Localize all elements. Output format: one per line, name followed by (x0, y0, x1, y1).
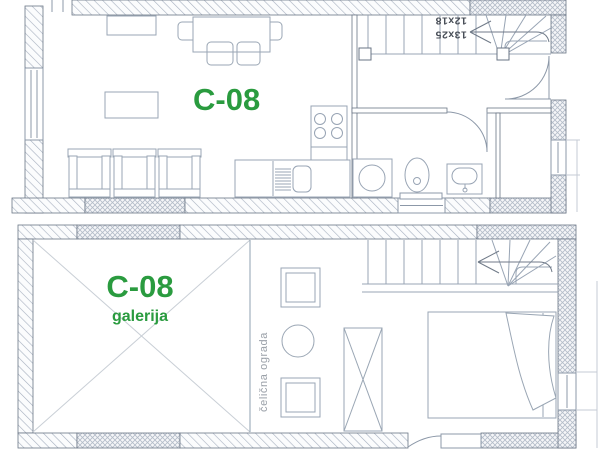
winder-treads (492, 240, 556, 286)
armchair (158, 149, 201, 197)
bed (428, 312, 556, 418)
railing-label: čelična ograda (258, 332, 270, 412)
armchair (113, 149, 156, 197)
bathroom-door (447, 112, 487, 152)
bathroom-sink (447, 164, 482, 194)
stair-direction-arrow (478, 251, 552, 273)
gallery-label-block: C-08 galerija (100, 269, 180, 326)
wall (185, 198, 398, 213)
kitchen-sink (293, 166, 311, 192)
newel-post (497, 48, 509, 60)
wall (180, 433, 408, 448)
entry-door (506, 56, 549, 99)
wall (445, 198, 490, 213)
window-right-wall-gallery (558, 373, 576, 410)
window-bath-south (398, 193, 445, 213)
window-left-wall (25, 68, 43, 140)
wall (180, 225, 477, 239)
wall (558, 239, 576, 373)
wall (25, 6, 43, 68)
opening-south-gallery (408, 434, 481, 448)
cabinet (107, 16, 156, 35)
wall (85, 198, 185, 213)
bathroom (353, 158, 482, 197)
unit-label-gallery: C-08 (100, 269, 180, 305)
wall (18, 239, 33, 433)
wall (558, 410, 576, 448)
partition-wall (496, 113, 500, 198)
stool (281, 378, 320, 417)
wardrobe (344, 328, 382, 431)
kitchen (235, 106, 350, 197)
wall (470, 0, 566, 15)
dining-set (178, 17, 282, 65)
wall (477, 225, 576, 239)
winder-treads (486, 15, 551, 57)
wall (18, 225, 77, 239)
wall (77, 225, 180, 239)
stair-dimension-flight-b: 12x18 (427, 13, 475, 27)
wall (12, 198, 85, 213)
stair-dimension-flight-a: 13x25 (427, 27, 475, 41)
window-right-wall-ground (551, 140, 566, 175)
wall (77, 433, 180, 448)
armchair (68, 149, 111, 197)
cabinet (105, 92, 158, 118)
wall (551, 175, 566, 213)
stair-dimension-label: 13x25 12x18 (427, 13, 475, 41)
stove (311, 106, 347, 147)
wall (551, 100, 566, 140)
partition-wall (487, 108, 551, 113)
wall (551, 15, 566, 53)
wall (72, 0, 470, 15)
partition-wall (352, 108, 447, 113)
side-table (282, 325, 314, 357)
washing-machine (353, 159, 392, 197)
dining-table (193, 17, 270, 52)
newel-post (359, 48, 371, 60)
stool (281, 268, 320, 307)
unit-label-ground: C-08 (193, 84, 260, 115)
plan-linework (0, 0, 600, 449)
staircase-gallery (362, 240, 558, 292)
floor-plan-drawing: C-08 13x25 12x18 C-08 galerija čelična o… (0, 0, 600, 449)
toilet (405, 158, 429, 192)
gallery-level-label: galerija (100, 308, 180, 326)
wall (18, 433, 77, 448)
